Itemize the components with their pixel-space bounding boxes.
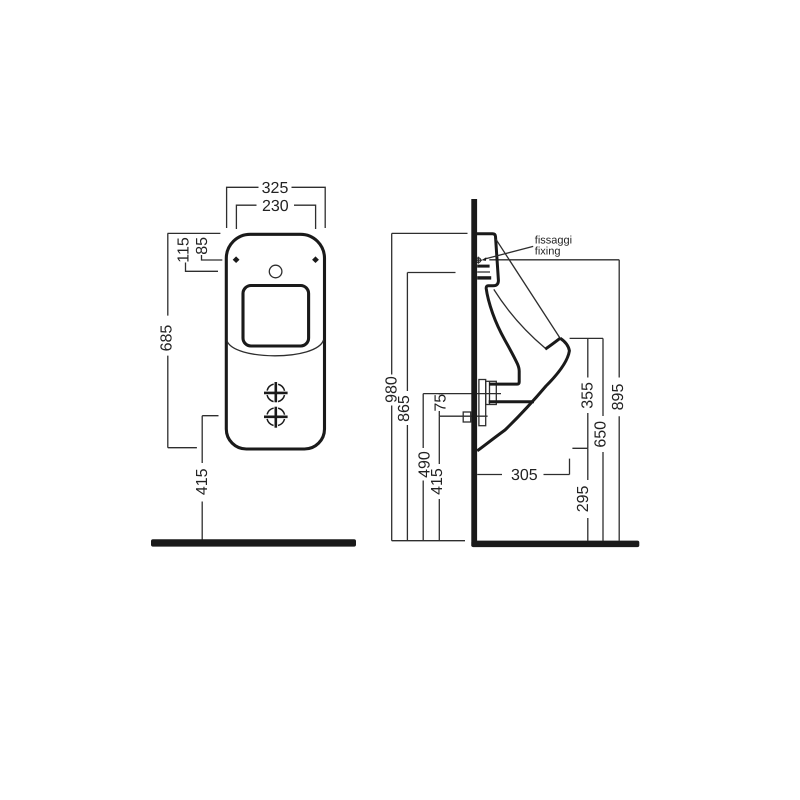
svg-text:75: 75 — [433, 394, 450, 412]
svg-text:fissaggi: fissaggi — [535, 234, 572, 246]
svg-text:295: 295 — [575, 485, 592, 512]
svg-text:685: 685 — [159, 325, 176, 352]
svg-text:355: 355 — [580, 382, 597, 409]
svg-text:650: 650 — [592, 421, 609, 448]
svg-text:865: 865 — [396, 395, 413, 422]
svg-text:325: 325 — [262, 180, 289, 197]
svg-text:305: 305 — [511, 467, 538, 484]
svg-text:115: 115 — [176, 237, 193, 263]
svg-text:85: 85 — [194, 237, 211, 255]
svg-text:895: 895 — [610, 384, 627, 411]
svg-text:230: 230 — [262, 198, 289, 215]
svg-text:fixing: fixing — [535, 246, 561, 258]
svg-text:415: 415 — [194, 468, 211, 495]
svg-text:415: 415 — [429, 468, 446, 495]
